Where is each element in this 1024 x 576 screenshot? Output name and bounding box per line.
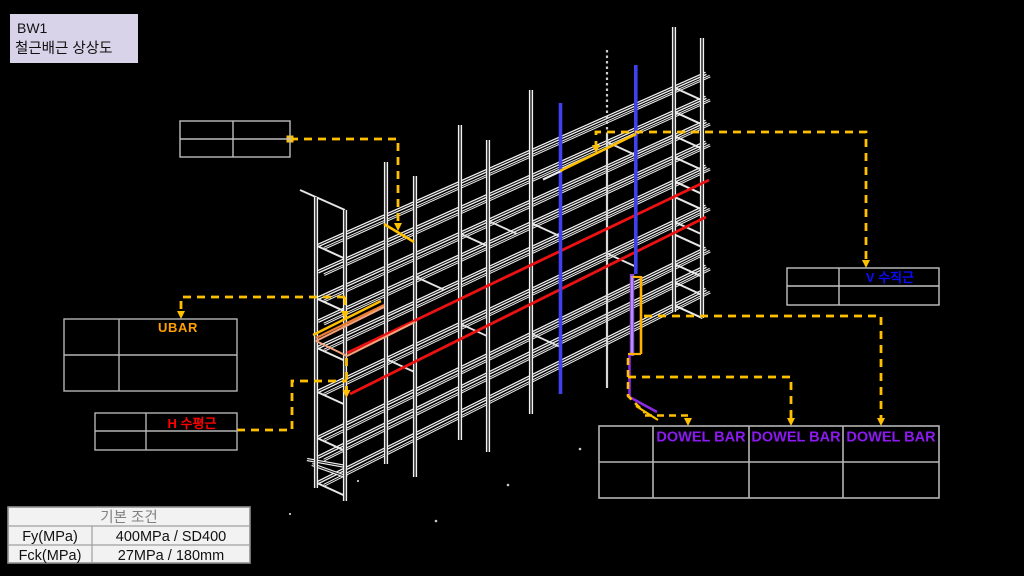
svg-text:V 수직근: V 수직근 [866, 270, 914, 285]
svg-text:27MPa / 180mm: 27MPa / 180mm [118, 548, 224, 564]
svg-text:DOWEL BAR: DOWEL BAR [846, 430, 936, 446]
svg-text:H 수평근: H 수평근 [168, 416, 217, 431]
svg-text:기본 조건: 기본 조건 [100, 509, 157, 526]
svg-text:BW1: BW1 [17, 20, 48, 36]
svg-text:DOWEL BAR: DOWEL BAR [751, 430, 841, 446]
svg-text:DOWEL BAR: DOWEL BAR [656, 430, 746, 446]
svg-text:UBAR: UBAR [158, 320, 198, 335]
svg-text:철근배근 상상도: 철근배근 상상도 [15, 40, 112, 57]
svg-text:400MPa / SD400: 400MPa / SD400 [116, 529, 226, 545]
svg-text:Fy(MPa): Fy(MPa) [22, 529, 78, 545]
svg-text:Fck(MPa): Fck(MPa) [19, 548, 82, 564]
